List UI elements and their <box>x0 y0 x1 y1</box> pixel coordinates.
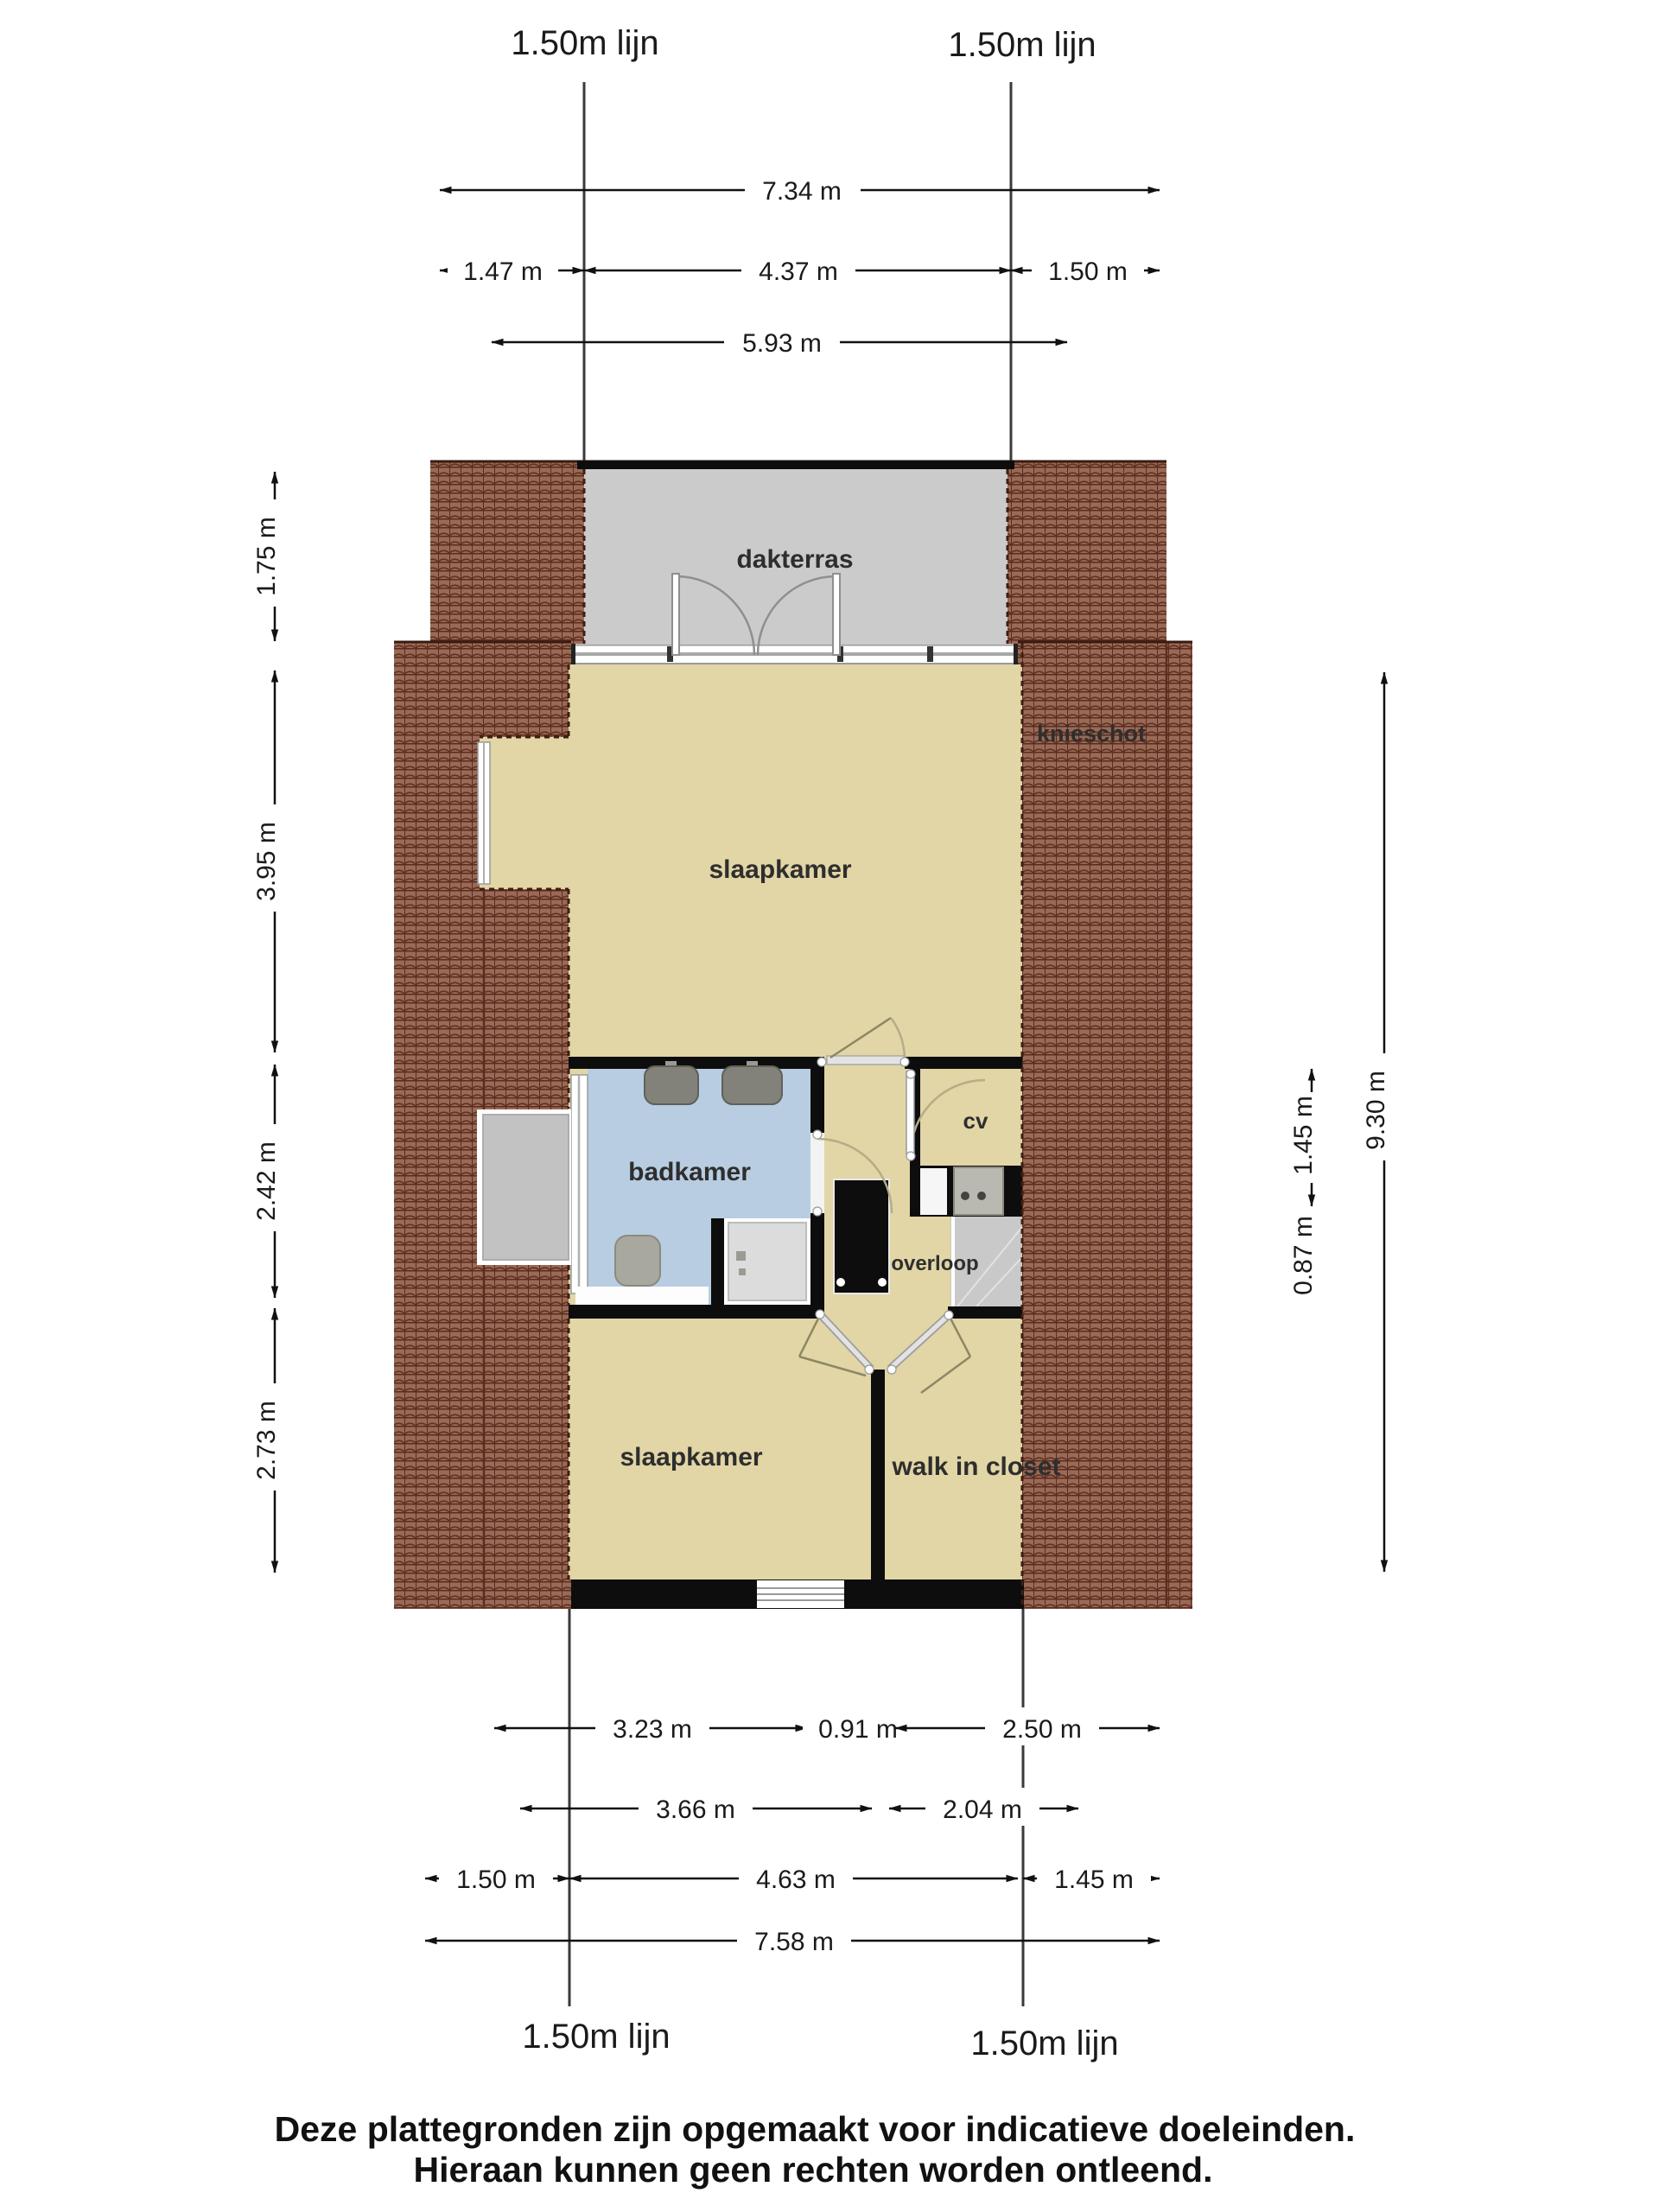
svg-text:badkamer: badkamer <box>628 1158 751 1186</box>
svg-text:1.50m lijn: 1.50m lijn <box>970 2024 1118 2063</box>
svg-text:2.42 m: 2.42 m <box>252 1141 281 1221</box>
svg-text:1.50m lijn: 1.50m lijn <box>948 26 1096 64</box>
svg-text:slaapkamer: slaapkamer <box>620 1443 762 1471</box>
svg-text:dakterras: dakterras <box>736 545 853 574</box>
svg-text:3.95 m: 3.95 m <box>252 822 281 901</box>
svg-text:2.73 m: 2.73 m <box>252 1401 281 1480</box>
svg-text:5.93 m: 5.93 m <box>742 329 822 358</box>
svg-text:1.47 m: 1.47 m <box>463 257 543 286</box>
svg-text:knieschot: knieschot <box>1037 721 1146 747</box>
svg-text:1.45 m: 1.45 m <box>1054 1866 1134 1894</box>
svg-text:1.45 m: 1.45 m <box>1289 1096 1318 1175</box>
svg-text:1.50 m: 1.50 m <box>1048 257 1128 286</box>
svg-text:7.34 m: 7.34 m <box>762 177 842 206</box>
svg-text:3.66 m: 3.66 m <box>656 1796 735 1824</box>
svg-text:4.37 m: 4.37 m <box>759 257 838 286</box>
svg-text:3.23 m: 3.23 m <box>613 1715 692 1744</box>
svg-text:1.50m lijn: 1.50m lijn <box>511 24 658 62</box>
svg-text:Deze plattegronden zijn opgema: Deze plattegronden zijn opgemaakt voor i… <box>275 2109 1356 2149</box>
svg-text:0.87 m: 0.87 m <box>1289 1216 1318 1295</box>
svg-text:cv: cv <box>963 1108 988 1134</box>
svg-text:4.63 m: 4.63 m <box>756 1866 836 1894</box>
svg-text:slaapkamer: slaapkamer <box>709 855 851 884</box>
svg-text:2.04 m: 2.04 m <box>943 1796 1022 1824</box>
svg-text:1.50 m: 1.50 m <box>456 1866 536 1894</box>
svg-text:Hieraan kunnen geen rechten wo: Hieraan kunnen geen rechten worden ontle… <box>414 2150 1213 2190</box>
svg-text:2.50 m: 2.50 m <box>1002 1715 1082 1744</box>
svg-text:7.58 m: 7.58 m <box>754 1928 834 1956</box>
svg-text:walk in closet: walk in closet <box>891 1452 1060 1481</box>
svg-text:1.75 m: 1.75 m <box>252 517 281 596</box>
svg-text:9.30 m: 9.30 m <box>1362 1071 1390 1150</box>
svg-text:0.91 m: 0.91 m <box>818 1715 898 1744</box>
svg-text:1.50m lijn: 1.50m lijn <box>522 2018 670 2056</box>
svg-text:overloop: overloop <box>891 1252 978 1275</box>
